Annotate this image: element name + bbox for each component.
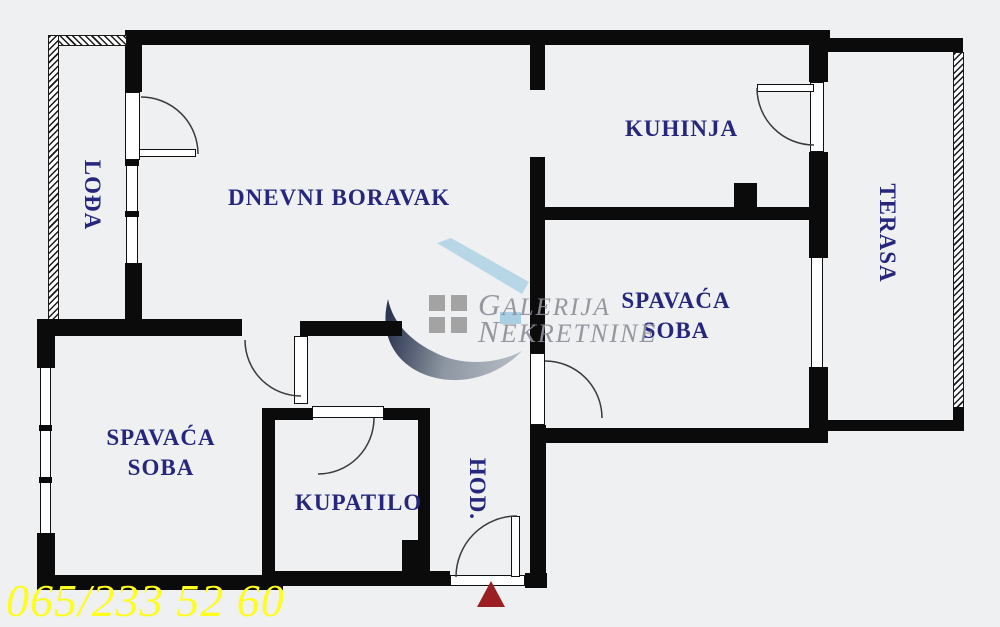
bedroom-left-door-arc [245, 340, 301, 396]
watermark-line2: NEKRETNINE [478, 314, 657, 350]
bedroom-right-door-frame [530, 353, 545, 425]
wall-top-terasa [828, 38, 963, 52]
wall-bathroom-left [262, 410, 275, 583]
room-label-dnevni-boravak: DNEVNI BORAVAK [228, 185, 450, 211]
bedroom-left-door-leaf [294, 336, 308, 404]
loggia-door-leaf [139, 149, 196, 157]
room-label-loda: LOĐA [52, 155, 132, 235]
terasa-rail-hatch [953, 52, 964, 409]
wall-kitchen-right-mid [809, 152, 828, 258]
floor-plan: LOĐA DNEVNI BORAVAK KUHINJA TERASA SPAVA… [0, 0, 1000, 627]
wall-central-low [530, 425, 546, 588]
wall-left-block-top [37, 319, 55, 368]
logo-roof-icon [437, 238, 529, 294]
wall-entrance-right [525, 573, 547, 588]
bedroom-left-window-sill [39, 477, 52, 483]
wall-kitchen-right-top [809, 45, 828, 82]
wall-bedroom-right-bottom [531, 428, 828, 443]
terasa-window [811, 258, 823, 367]
room-label-kupatilo: KUPATILO [295, 490, 422, 516]
room-label-spavaca-soba-left: SPAVAĆA SOBA [86, 423, 236, 483]
room-label-kuhinja: KUHINJA [625, 116, 738, 142]
phone-number: 065/233 52 60 [6, 574, 285, 627]
bedroom-left-window-sill [39, 425, 52, 431]
room-label-hod: HOD. [437, 449, 517, 529]
bathroom-door-leaf [312, 406, 384, 418]
bedroom-left-window [40, 368, 51, 533]
room-label-terasa: TERASA [847, 193, 927, 273]
loggia-rail-hatch-top [48, 35, 127, 46]
wall-mid-right [300, 321, 402, 336]
loggia-door-arc [141, 97, 198, 154]
entrance-arrow-icon [477, 581, 505, 607]
wall-terasa-bottom [827, 420, 964, 431]
wall-kitchen-south [531, 207, 828, 220]
kitchen-door-arc [757, 88, 814, 145]
wall-top-main [125, 30, 830, 45]
bathroom-duct-block [402, 540, 430, 573]
kitchen-door-frame [810, 82, 824, 152]
bathroom-door-arc [318, 418, 374, 474]
logo-window-squares-icon [429, 295, 467, 333]
wall-central-top [530, 45, 545, 90]
bedroom-right-door-arc [545, 361, 602, 418]
wall-bathroom-bottom [262, 571, 450, 586]
kitchen-door-leaf [757, 84, 814, 92]
wall-kitchen-pier [734, 183, 757, 220]
wall-loggia-divider-top [125, 30, 142, 92]
wall-bathroom-top-left [262, 408, 313, 420]
loggia-door-frame [125, 92, 140, 160]
wall-mid-left [40, 319, 242, 336]
